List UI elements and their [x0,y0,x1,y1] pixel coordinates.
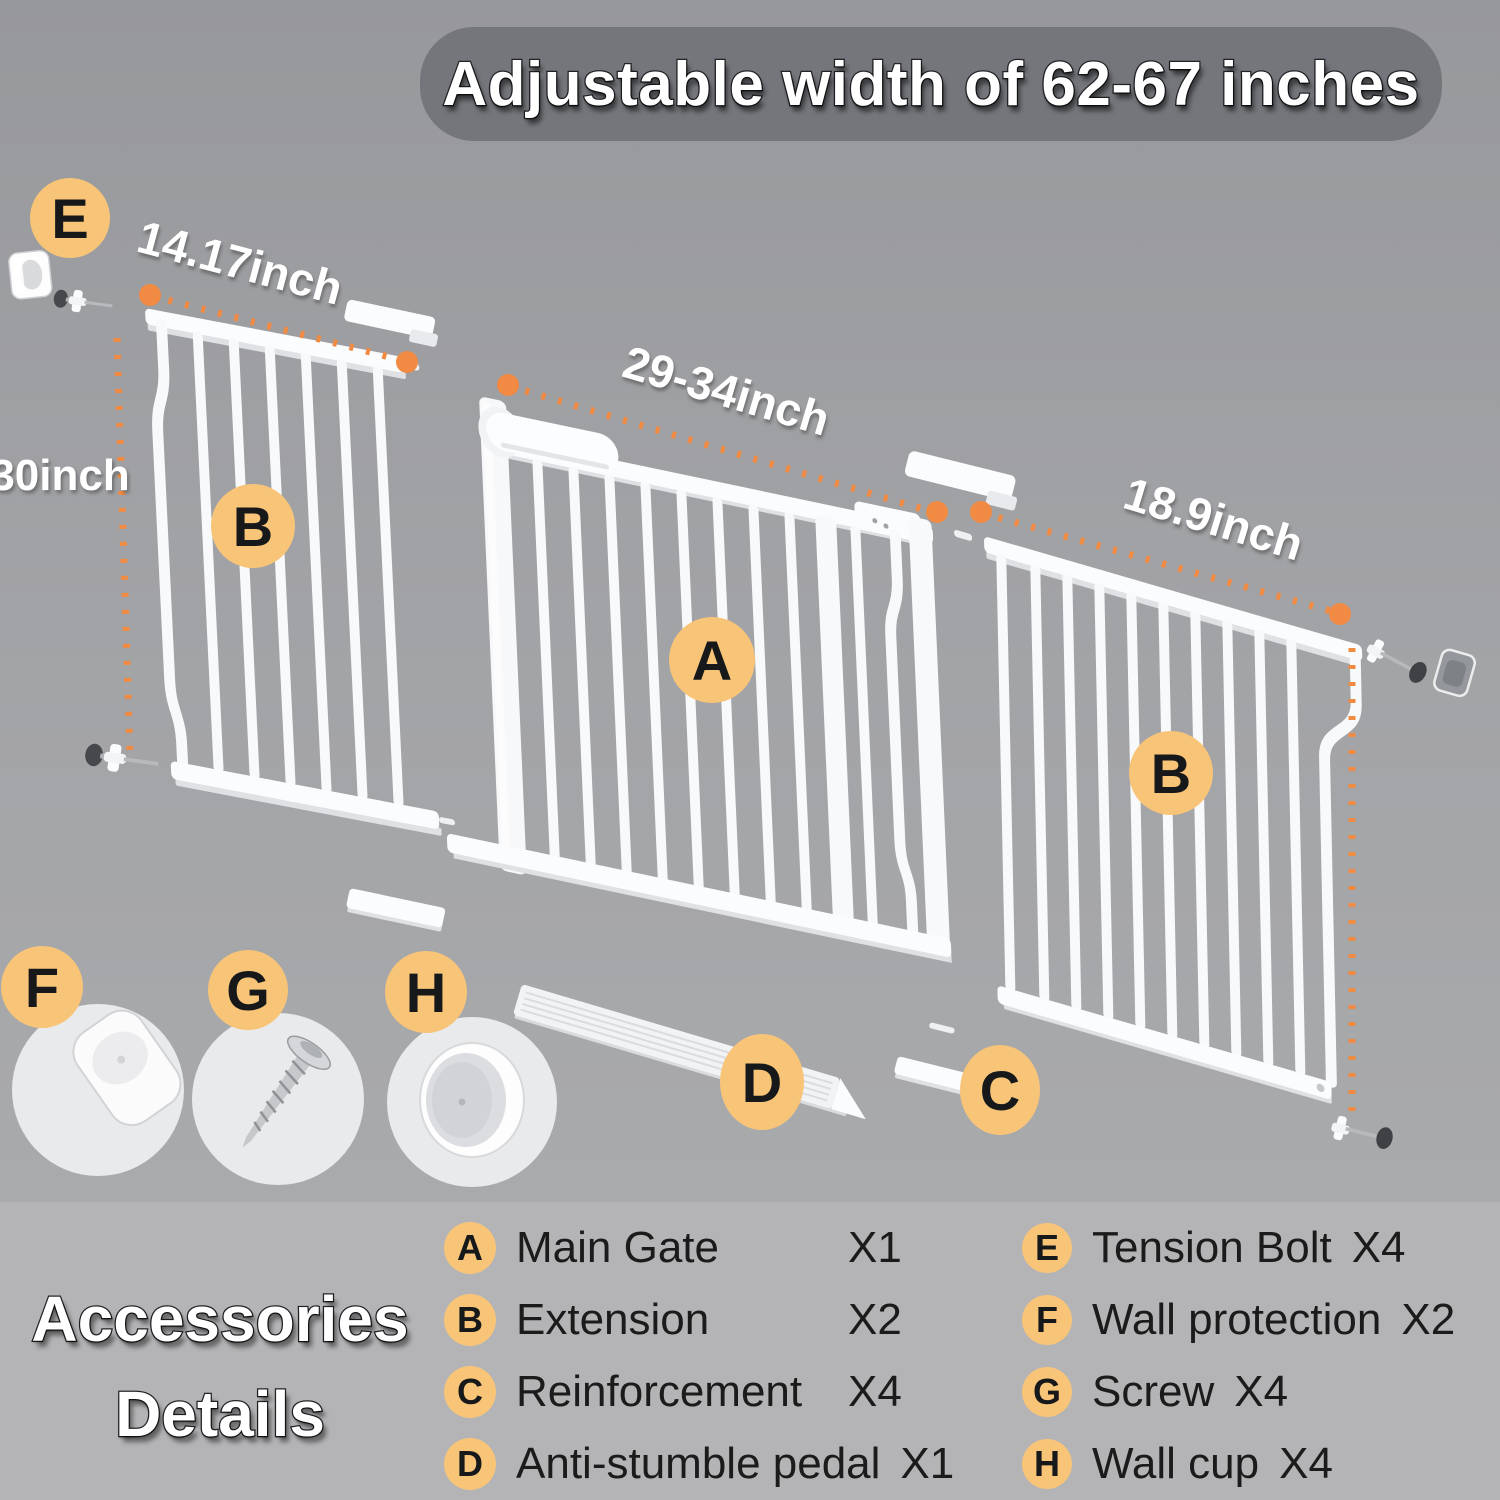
tension-bolt-icon-top-left [52,287,113,317]
svg-text:H: H [406,961,446,1024]
badge-reinforcement: C [960,1045,1040,1135]
wall-cup-icon-detail [420,1043,524,1157]
legend-qty: X4 [848,1367,902,1417]
anti-stumble-pedal-illustration [512,984,875,1122]
accessories-heading: Accessories Details [20,1272,420,1462]
diagram-area: 14.17inch 30inch 29-34inch 18.9inch E B … [0,0,1500,1202]
svg-text:C: C [980,1059,1020,1122]
mount-bracket-top-middle [902,450,1023,511]
legend-item-reinforcement: C Reinforcement X4 [444,1356,954,1428]
legend-label: Tension Bolt [1092,1223,1332,1273]
measurement-left-extension: 14.17inch [132,210,348,314]
svg-text:A: A [692,629,732,692]
legend-qty: X4 [1279,1439,1333,1489]
svg-text:G: G [226,959,270,1022]
legend-qty: X1 [900,1439,954,1489]
accessories-heading-line2: Details [20,1367,420,1462]
legend-badge: E [1022,1223,1072,1273]
svg-text:D: D [742,1051,782,1114]
legend-badge: F [1022,1295,1072,1345]
legend-label: Screw [1092,1367,1214,1417]
legend-label: Main Gate [516,1223,828,1273]
legend-item-wall-cup: H Wall cup X4 [1022,1428,1455,1500]
legend-label: Wall cup [1092,1439,1259,1489]
legend-badge: A [444,1222,496,1274]
gate-product-diagram: 14.17inch 30inch 29-34inch 18.9inch E B … [0,0,1500,1500]
mount-bracket-top-left [342,299,442,347]
legend-badge: H [1022,1439,1072,1489]
legend-label: Extension [516,1295,828,1345]
tension-bolt-icon-mid-left [83,740,160,777]
badge-main-gate: A [669,617,755,703]
legend-badge: B [444,1294,496,1346]
legend-badge: C [444,1366,496,1418]
wall-cup-icon-top-left [8,250,53,300]
legend-item-main-gate: A Main Gate X1 [444,1212,954,1284]
badge-extension-left: B [211,484,295,568]
reinforcement-bar-left [345,888,446,932]
left-extension-illustration [145,308,456,839]
legend-qty: X2 [1401,1295,1455,1345]
right-extension-illustration [954,527,1372,1115]
legend-column-left: A Main Gate X1 B Extension X2 C Reinforc… [444,1212,954,1500]
badge-pedal: D [720,1034,804,1130]
accessories-heading-line1: Accessories [20,1272,420,1367]
legend-qty: X1 [848,1223,902,1273]
title-banner: Adjustable width of 62-67 inches [420,27,1442,141]
svg-text:B: B [233,495,273,558]
badge-wall-cup: H [385,951,467,1033]
svg-text:E: E [51,187,88,250]
legend-qty: X2 [848,1295,902,1345]
wall-cup-icon-right [1432,648,1476,698]
measurement-height: 30inch [0,451,130,500]
tension-bolt-icon-right [1362,636,1430,687]
legend-item-extension: B Extension X2 [444,1284,954,1356]
legend-item-tension-bolt: E Tension Bolt X4 [1022,1212,1455,1284]
legend-badge: D [444,1438,496,1490]
legend-badge: G [1022,1367,1072,1417]
tension-bolt-icon-bottom-right [1329,1114,1395,1152]
door-edge-bar [815,514,854,930]
svg-text:F: F [25,956,59,1019]
legend-qty: X4 [1352,1223,1406,1273]
page-title: Adjustable width of 62-67 inches [442,49,1419,120]
badge-extension-right: B [1129,731,1213,815]
legend-column-right: E Tension Bolt X4 F Wall protection X2 G… [1022,1212,1455,1500]
svg-text:B: B [1151,742,1191,805]
badge-screw: G [208,950,288,1030]
legend-item-pedal: D Anti-stumble pedal X1 [444,1428,954,1500]
legend-item-wall-protection: F Wall protection X2 [1022,1284,1455,1356]
measurement-right-extension: 18.9inch [1118,467,1309,571]
legend-label: Reinforcement [516,1367,828,1417]
measurement-main-gate: 29-34inch [617,336,835,446]
legend-label: Wall protection [1092,1295,1381,1345]
measure-line-height [117,338,130,756]
legend-item-screw: G Screw X4 [1022,1356,1455,1428]
accessories-panel: Accessories Details A Main Gate X1 B Ext… [0,1202,1500,1500]
badge-tension-bolt: E [30,178,110,258]
badge-wall-protection: F [1,946,83,1028]
legend-label: Anti-stumble pedal [516,1439,880,1489]
legend-qty: X4 [1234,1367,1288,1417]
right-post [908,516,950,949]
